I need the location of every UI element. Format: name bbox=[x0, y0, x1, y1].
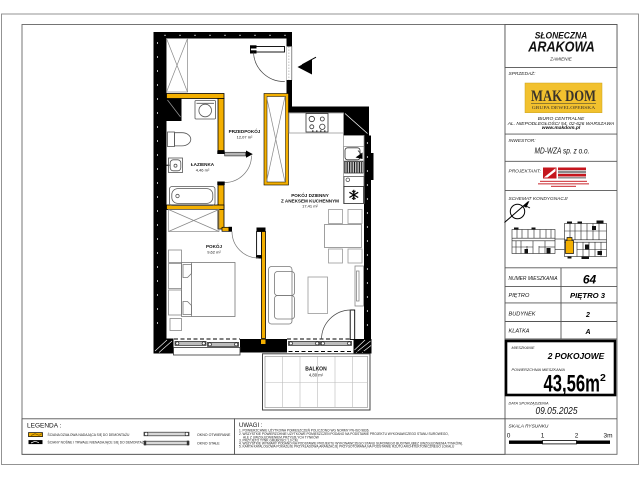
svg-text:12,07 m²: 12,07 m² bbox=[237, 134, 253, 139]
svg-text:OKNO STAŁE: OKNO STAŁE bbox=[197, 442, 220, 446]
svg-text:2: 2 bbox=[600, 372, 606, 384]
svg-text:PROJEKTANT:: PROJEKTANT: bbox=[509, 169, 542, 175]
svg-text:2: 2 bbox=[575, 433, 579, 440]
svg-text:0: 0 bbox=[507, 433, 511, 440]
svg-text:INWESTOR:: INWESTOR: bbox=[509, 138, 537, 144]
svg-text:ZAMIENIE: ZAMIENIE bbox=[549, 57, 573, 62]
svg-text:PIĘTRO: PIĘTRO bbox=[509, 293, 530, 299]
svg-text:1: 1 bbox=[541, 433, 545, 440]
svg-text:PRZEDPOKÓJ: PRZEDPOKÓJ bbox=[229, 127, 261, 134]
svg-text:MD-WZA sp. z o.o.: MD-WZA sp. z o.o. bbox=[535, 146, 590, 155]
svg-text:9,62 m²: 9,62 m² bbox=[207, 249, 221, 254]
svg-text:ŁAZIENKA: ŁAZIENKA bbox=[191, 162, 215, 167]
svg-text:NUMER MIESZKANIA: NUMER MIESZKANIA bbox=[509, 276, 558, 282]
svg-text:3m: 3m bbox=[603, 433, 612, 440]
svg-text:5. KARTA KATALOGOWA POKAZUJE P: 5. KARTA KATALOGOWA POKAZUJE PRZYKŁADOWĄ… bbox=[239, 444, 455, 449]
svg-text:4,46 m²: 4,46 m² bbox=[196, 167, 210, 172]
svg-text:A: A bbox=[584, 329, 590, 336]
svg-text:BUDYNEK: BUDYNEK bbox=[509, 312, 536, 318]
svg-text:MIESZKANIE: MIESZKANIE bbox=[512, 346, 535, 350]
svg-text:09.05.2025: 09.05.2025 bbox=[536, 405, 578, 417]
svg-text:43,56m: 43,56m bbox=[544, 371, 601, 398]
svg-text:SPRZEDAŻ:: SPRZEDAŻ: bbox=[509, 70, 537, 77]
svg-text:4,80 m²: 4,80 m² bbox=[309, 373, 324, 378]
svg-text:LEGENDA :: LEGENDA : bbox=[27, 423, 62, 430]
svg-text:SCHEMAT KONDYGNACJI: SCHEMAT KONDYGNACJI bbox=[509, 196, 569, 202]
svg-text:KLATKA: KLATKA bbox=[509, 329, 530, 335]
svg-text:2 POKOJOWE: 2 POKOJOWE bbox=[547, 351, 605, 361]
svg-text:POKÓJ DZIENNY: POKÓJ DZIENNY bbox=[291, 191, 329, 198]
svg-text:Z ANEKSEM KUCHENNYM: Z ANEKSEM KUCHENNYM bbox=[281, 198, 339, 203]
svg-text:PIĘTRO 3: PIĘTRO 3 bbox=[570, 291, 605, 300]
svg-text:OKNO OTWIERANE: OKNO OTWIERANE bbox=[197, 433, 231, 437]
svg-text:ŚCIANA DZIAŁOWA NADAJĄCA SIĘ D: ŚCIANA DZIAŁOWA NADAJĄCA SIĘ DO DEMONTAŻ… bbox=[48, 432, 131, 437]
svg-text:ŚCIANY NOŚNE I TRWAŁE NIENADAJ: ŚCIANY NOŚNE I TRWAŁE NIENADAJĄCE SIĘ DO… bbox=[48, 440, 147, 445]
svg-text:17,41 m²: 17,41 m² bbox=[302, 204, 318, 209]
svg-text:64: 64 bbox=[583, 272, 597, 286]
svg-text:GRUPA DEWELOPERSKA: GRUPA DEWELOPERSKA bbox=[532, 105, 597, 110]
svg-text:MAK DOM: MAK DOM bbox=[531, 88, 596, 105]
svg-text:SKALA RYSUNKU: SKALA RYSUNKU bbox=[509, 424, 549, 430]
svg-text:POKÓJ: POKÓJ bbox=[206, 242, 223, 249]
svg-text:ARAKOWA: ARAKOWA bbox=[527, 38, 594, 55]
svg-text:2: 2 bbox=[585, 312, 590, 319]
svg-text:www.makdom.pl: www.makdom.pl bbox=[542, 125, 581, 131]
